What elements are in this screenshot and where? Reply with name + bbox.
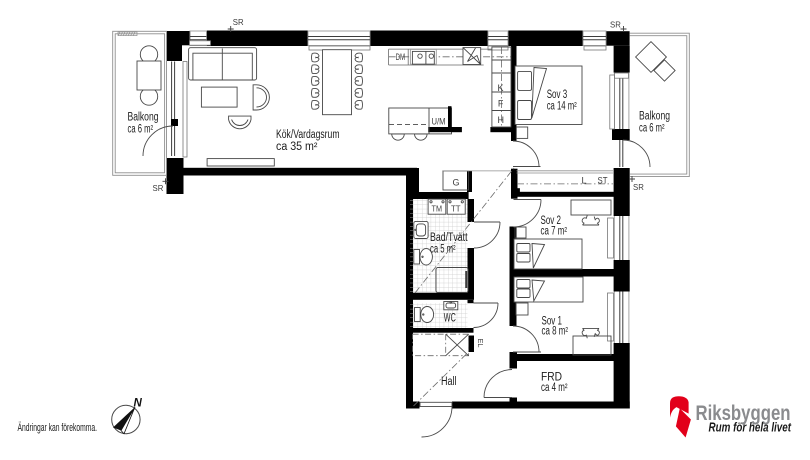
svg-text:Bad/Tvätt: Bad/Tvätt [430, 232, 468, 244]
svg-text:Hall: Hall [441, 376, 457, 388]
svg-text:ca 7 m²: ca 7 m² [541, 226, 568, 238]
svg-text:SR: SR [610, 21, 621, 30]
svg-text:SR: SR [233, 18, 244, 27]
svg-text:ca 5 m²: ca 5 m² [430, 244, 456, 256]
svg-text:ca 35 m²: ca 35 m² [276, 141, 318, 153]
svg-text:ca 4 m²: ca 4 m² [541, 382, 568, 394]
svg-text:ca 8 m²: ca 8 m² [542, 326, 569, 338]
svg-text:Sov 3: Sov 3 [547, 89, 568, 101]
svg-text:SR: SR [633, 183, 644, 192]
svg-text:Balkong: Balkong [128, 112, 159, 124]
svg-text:H: H [498, 115, 505, 125]
svg-text:L: L [582, 175, 587, 185]
svg-text:ca 14 m²: ca 14 m² [547, 101, 577, 113]
svg-text:Kök/Vardagsrum: Kök/Vardagsrum [276, 129, 340, 141]
svg-text:G: G [453, 178, 460, 188]
svg-text:Rum för hela livet: Rum för hela livet [709, 420, 792, 435]
svg-text:ST: ST [598, 175, 608, 185]
svg-text:N: N [134, 398, 143, 410]
svg-text:WC: WC [444, 313, 456, 325]
svg-text:K: K [498, 83, 504, 93]
svg-text:U/M: U/M [432, 117, 446, 127]
svg-text:ca 6 m²: ca 6 m² [128, 124, 154, 136]
svg-text:EL: EL [476, 339, 483, 348]
svg-text:TT: TT [451, 205, 461, 214]
svg-text:F: F [498, 99, 504, 109]
svg-text:SR: SR [153, 184, 164, 193]
svg-text:TM: TM [432, 205, 443, 214]
svg-text:DM: DM [396, 52, 406, 62]
svg-text:Ändringar kan förekomma.: Ändringar kan förekomma. [18, 422, 98, 434]
svg-text:ca 6 m²: ca 6 m² [639, 123, 665, 135]
svg-text:Balkong: Balkong [639, 111, 670, 123]
